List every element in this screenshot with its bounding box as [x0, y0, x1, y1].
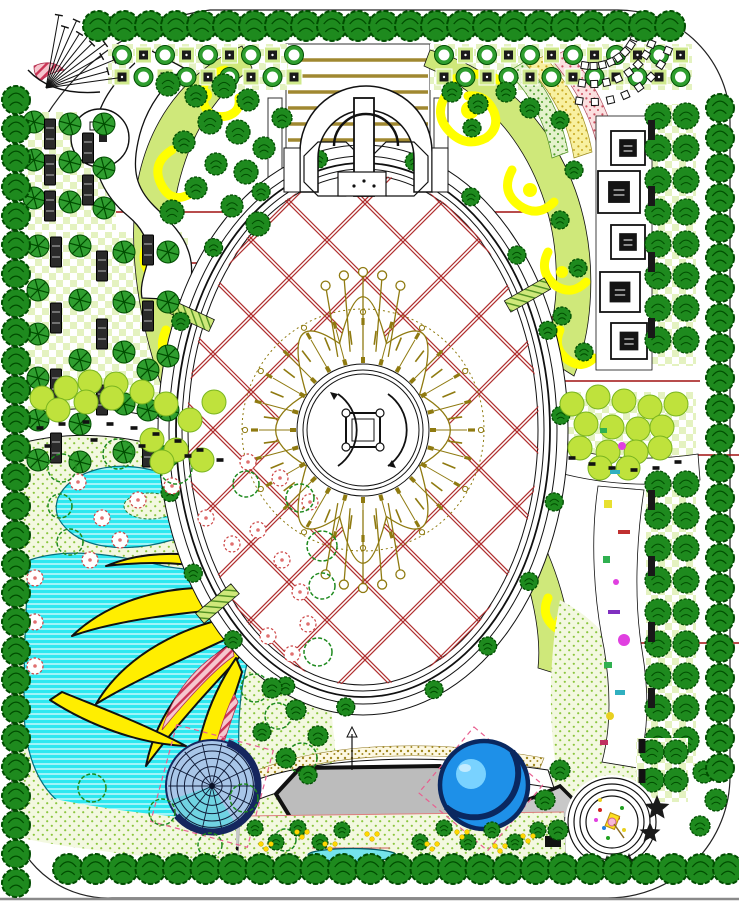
tree-canopy	[173, 131, 195, 153]
border-tree	[655, 11, 685, 41]
rafter-tip	[55, 14, 63, 15]
border-tree	[713, 854, 739, 884]
tree-canopy	[493, 854, 523, 884]
stepping-stone	[675, 460, 682, 464]
tree	[673, 503, 699, 529]
flower-shrub	[94, 510, 110, 526]
border-tree	[2, 666, 30, 694]
ray-base-tick	[380, 359, 382, 365]
tree-canopy	[2, 840, 30, 868]
border-tree	[163, 854, 193, 884]
tree	[645, 663, 671, 689]
ray-tick	[334, 322, 336, 329]
tree-canopy	[545, 493, 563, 511]
tree	[237, 89, 259, 111]
border-tree	[108, 854, 138, 884]
tree	[545, 493, 563, 511]
tree-canopy	[673, 695, 699, 721]
bench	[83, 175, 94, 205]
tree-canopy	[706, 454, 734, 482]
tree	[205, 239, 223, 257]
tree-canopy	[521, 854, 551, 884]
bench-body	[45, 155, 56, 185]
tree	[185, 85, 207, 107]
planter-dot	[250, 76, 252, 78]
border-tree	[706, 604, 734, 632]
ray-base-tick	[421, 464, 426, 467]
ray-base-tick	[397, 488, 400, 493]
border-tree	[2, 115, 30, 143]
ray-base-tick	[292, 411, 298, 413]
tree-canopy	[690, 816, 710, 836]
light-tree	[150, 450, 174, 474]
tree-canopy	[706, 484, 734, 512]
tree	[334, 822, 350, 838]
flower-center	[280, 558, 284, 562]
flower-center	[33, 576, 37, 580]
tree-canopy	[184, 564, 202, 582]
tree-canopy	[673, 135, 699, 161]
tree	[226, 120, 250, 144]
border-tree	[2, 289, 30, 317]
web-dome	[166, 740, 258, 832]
flower-center	[290, 652, 294, 656]
flower-shrub	[240, 454, 256, 470]
border-tree	[2, 405, 30, 433]
border-tree	[2, 202, 30, 230]
border-tree	[706, 274, 734, 302]
garden-accent	[603, 556, 610, 563]
flower-shrub	[224, 536, 240, 552]
flower-tree	[242, 46, 261, 65]
tree-canopy	[2, 86, 30, 114]
tree-canopy	[253, 723, 271, 741]
star-tree	[113, 241, 135, 263]
tree-canopy	[673, 295, 699, 321]
border-tree	[53, 854, 83, 884]
flower-dot	[259, 842, 264, 847]
tree-canopy	[172, 312, 190, 330]
tree-canopy	[163, 854, 193, 884]
tree-canopy	[2, 318, 30, 346]
tree	[252, 183, 270, 201]
flower-dot	[305, 830, 310, 835]
tree	[705, 789, 727, 811]
tree-canopy	[706, 394, 734, 422]
star-tree	[113, 291, 135, 313]
confetti-dot	[602, 826, 606, 830]
bench	[648, 556, 655, 576]
ray-tick	[390, 322, 392, 329]
flower-tree	[671, 68, 690, 87]
stepping-stone	[185, 454, 192, 458]
tree-canopy	[569, 259, 587, 277]
tree-canopy	[655, 11, 685, 41]
border-tree	[706, 454, 734, 482]
border-tree	[2, 231, 30, 259]
tree-canopy	[299, 766, 317, 784]
rafter-tip	[76, 31, 83, 35]
canopy-highlight	[289, 50, 300, 61]
bench-body	[51, 237, 62, 267]
yellow-swirl-dot	[523, 183, 537, 197]
canopy-highlight	[246, 50, 257, 61]
flower-shrub	[112, 532, 128, 548]
tree	[463, 119, 481, 137]
border-tree	[2, 637, 30, 665]
flower-center	[308, 500, 312, 504]
tree-canopy	[673, 263, 699, 289]
star-tree	[93, 113, 115, 135]
flower-center	[170, 484, 174, 488]
confetti-dot	[606, 836, 610, 840]
tree-canopy	[548, 854, 578, 884]
light-tree	[46, 398, 70, 422]
tree	[673, 535, 699, 561]
bench	[45, 191, 56, 221]
canopy-highlight	[503, 72, 514, 83]
tree-canopy	[286, 700, 306, 720]
tree-canopy	[337, 698, 355, 716]
tree-canopy	[560, 392, 584, 416]
tree-canopy	[411, 854, 441, 884]
ray-tick	[255, 401, 262, 403]
tree	[673, 103, 699, 129]
star-tree	[59, 191, 81, 213]
tree	[308, 726, 328, 746]
tree-canopy	[202, 390, 226, 414]
star-tree	[69, 413, 91, 435]
tree-canopy	[706, 334, 734, 362]
ray-base-tick	[327, 488, 330, 493]
tree	[224, 631, 242, 649]
tree-canopy	[2, 347, 30, 375]
tree-canopy	[706, 184, 734, 212]
kiosk-dot	[372, 184, 375, 187]
stepping-stone	[91, 438, 98, 442]
flower-dot	[300, 835, 305, 840]
tree-canopy	[706, 274, 734, 302]
light-tree	[100, 386, 124, 410]
border-tree	[706, 244, 734, 272]
tree-canopy	[154, 392, 178, 416]
bench	[648, 186, 655, 206]
flower-dot	[498, 849, 503, 854]
border-tree	[191, 854, 221, 884]
flower-dot	[375, 832, 380, 837]
tree-canopy	[252, 183, 270, 201]
stepping-paver	[598, 61, 606, 69]
planter-dot	[572, 76, 574, 78]
stepping-stone	[569, 456, 576, 460]
tree-canopy	[54, 376, 78, 400]
tree-canopy	[100, 386, 124, 410]
tree-canopy	[2, 869, 30, 897]
tree-canopy	[237, 89, 259, 111]
stepping-stone	[589, 462, 596, 466]
planter-dot	[636, 54, 638, 56]
bench-body	[45, 119, 56, 149]
square-pavilion	[611, 323, 647, 359]
tree-canopy	[706, 514, 734, 542]
tree-canopy	[2, 115, 30, 143]
stem-bulb	[396, 281, 405, 290]
flower-shrub	[82, 552, 98, 568]
planter-box	[639, 769, 646, 783]
tree-canopy	[600, 415, 624, 439]
flower-dot	[460, 835, 465, 840]
tree-canopy	[221, 195, 243, 217]
tree-canopy	[301, 854, 331, 884]
tree-canopy	[539, 321, 557, 339]
border-tree	[548, 854, 578, 884]
flower-center	[88, 558, 92, 562]
tree-canopy	[673, 199, 699, 225]
stepping-paver	[575, 97, 583, 105]
flower-shrub	[198, 510, 214, 526]
flower-shrub	[302, 494, 318, 510]
tree	[673, 631, 699, 657]
tree	[253, 723, 271, 741]
tree	[508, 246, 526, 264]
border-tree	[2, 840, 30, 868]
round-pool	[440, 741, 528, 829]
ray-base-tick	[421, 394, 426, 397]
border-tree	[521, 854, 551, 884]
tree-canopy	[673, 535, 699, 561]
tree-canopy	[272, 108, 292, 128]
border-tree	[2, 579, 30, 607]
border-tree	[706, 304, 734, 332]
flower-center	[306, 622, 310, 626]
canopy-highlight	[117, 50, 128, 61]
flower-dot	[435, 842, 440, 847]
stem-bulb	[378, 580, 387, 589]
flower-dot	[425, 842, 430, 847]
flower-center	[278, 476, 282, 480]
yellow-swirl-dot	[556, 266, 568, 278]
tree-canopy	[2, 811, 30, 839]
bench	[648, 622, 655, 642]
star-tree	[59, 151, 81, 173]
tree	[468, 94, 488, 114]
flower-tree	[564, 46, 583, 65]
ray-base-tick	[300, 464, 305, 467]
tree-canopy	[234, 160, 258, 184]
tree-canopy	[713, 854, 739, 884]
tree-canopy	[2, 405, 30, 433]
garden-accent	[600, 428, 607, 433]
square-planter	[501, 47, 517, 63]
bench-body	[51, 303, 62, 333]
border-tree	[706, 424, 734, 452]
light-tree	[574, 412, 598, 436]
square-pavilion	[611, 225, 645, 259]
flower-tree	[134, 68, 153, 87]
light-tree	[54, 376, 78, 400]
kiosk-dot	[362, 179, 365, 182]
garden-accent	[604, 500, 612, 508]
tree-canopy	[706, 244, 734, 272]
tree	[246, 212, 270, 236]
border-tree	[301, 854, 331, 884]
tree	[551, 211, 569, 229]
flower-dot	[264, 847, 269, 852]
flower-shrub	[274, 552, 290, 568]
bench	[83, 133, 94, 163]
pergola-rafter	[46, 60, 114, 88]
stem-bulb	[339, 271, 348, 280]
tree-canopy	[212, 74, 236, 98]
tree-canopy	[53, 854, 83, 884]
light-tree	[626, 417, 650, 441]
canopy-highlight	[267, 72, 278, 83]
tree-canopy	[2, 521, 30, 549]
border-tree	[466, 854, 496, 884]
tree-canopy	[576, 854, 606, 884]
tree	[690, 816, 710, 836]
flower-shrub	[272, 470, 288, 486]
stepping-stone	[139, 444, 146, 448]
garden-accent	[618, 442, 626, 450]
bench-body	[97, 319, 108, 349]
square-planter	[243, 69, 259, 85]
stepping-paver	[581, 61, 589, 69]
light-tree	[588, 456, 612, 480]
ray-base-tick	[428, 411, 434, 413]
canopy-highlight	[525, 50, 536, 61]
stem-bulb	[339, 580, 348, 589]
border-tree	[706, 124, 734, 152]
garden-accent	[604, 662, 612, 668]
planter-dot	[228, 54, 230, 56]
star-tree	[27, 367, 49, 389]
planter-dot	[293, 76, 295, 78]
stepping-stone	[175, 439, 182, 443]
planter-dot	[443, 76, 445, 78]
tree-canopy	[2, 724, 30, 752]
canopy-highlight	[482, 50, 493, 61]
border-tree	[2, 695, 30, 723]
tree-canopy	[706, 604, 734, 632]
square-planter	[458, 47, 474, 63]
flower-dot	[269, 842, 274, 847]
tree-canopy	[496, 82, 516, 102]
ray-base-tick	[300, 394, 305, 397]
tree-canopy	[108, 854, 138, 884]
square-planter	[522, 69, 538, 85]
tree-canopy	[551, 111, 569, 129]
stem-bulb	[359, 268, 368, 277]
flower-center	[230, 542, 234, 546]
tree-canopy	[247, 820, 263, 836]
border-tree	[246, 854, 276, 884]
tree-canopy	[706, 94, 734, 122]
tree-canopy	[463, 119, 481, 137]
bench	[143, 301, 154, 331]
tree-canopy	[276, 748, 296, 768]
flower-shrub	[27, 570, 43, 586]
flower-tree	[478, 46, 497, 65]
tree-canopy	[356, 854, 386, 884]
tree	[520, 98, 540, 118]
garden-accent	[613, 579, 619, 585]
tree-canopy	[2, 202, 30, 230]
tree-canopy	[612, 389, 636, 413]
tree-canopy	[673, 631, 699, 657]
tree	[673, 471, 699, 497]
pavilion-core	[608, 181, 630, 203]
tree	[664, 768, 688, 792]
tree-canopy	[706, 154, 734, 182]
tree-canopy	[438, 854, 468, 884]
tree-canopy	[664, 740, 688, 764]
garden-accent	[615, 690, 625, 695]
square-planter	[286, 69, 302, 85]
canopy-highlight	[654, 50, 665, 61]
tree-canopy	[673, 567, 699, 593]
flower-dot	[526, 839, 531, 844]
tree	[565, 161, 583, 179]
border-tree	[2, 434, 30, 462]
tree-canopy	[130, 380, 154, 404]
square-pavilion	[611, 131, 645, 165]
tree-canopy	[205, 239, 223, 257]
light-tree	[178, 408, 202, 432]
tree-canopy	[383, 854, 413, 884]
border-tree	[706, 364, 734, 392]
tree-canopy	[246, 854, 276, 884]
tree	[262, 678, 282, 698]
garden-accent	[608, 610, 620, 614]
border-tree	[2, 550, 30, 578]
tree-canopy	[664, 392, 688, 416]
planter-box	[639, 739, 646, 753]
planter-dot	[464, 54, 466, 56]
stem-bulb	[321, 281, 330, 290]
square-pavilion	[600, 272, 640, 312]
bench-body	[143, 235, 154, 265]
flower-dot	[493, 844, 498, 849]
tree	[462, 188, 480, 206]
tree-canopy	[442, 82, 462, 102]
border-tree	[2, 86, 30, 114]
light-tree	[74, 390, 98, 414]
stepping-paver	[621, 90, 630, 99]
tree	[673, 599, 699, 625]
tree-canopy	[262, 678, 282, 698]
light-tree	[560, 392, 584, 416]
square-planter	[136, 47, 152, 63]
tree	[550, 760, 570, 780]
tree	[442, 82, 462, 102]
pool-highlight	[456, 759, 486, 789]
flower-dot	[295, 830, 300, 835]
tree-canopy	[706, 124, 734, 152]
flower-tree	[199, 46, 218, 65]
flower-shrub	[164, 478, 180, 494]
tree-canopy	[520, 572, 538, 590]
flower-dot	[455, 830, 460, 835]
tree	[673, 295, 699, 321]
tree-canopy	[706, 634, 734, 662]
center-sculpture-base	[346, 413, 380, 447]
light-tree	[586, 385, 610, 409]
kiosk-dot	[352, 184, 355, 187]
canopy-highlight	[460, 72, 471, 83]
border-tree	[706, 724, 734, 752]
tree	[673, 167, 699, 193]
